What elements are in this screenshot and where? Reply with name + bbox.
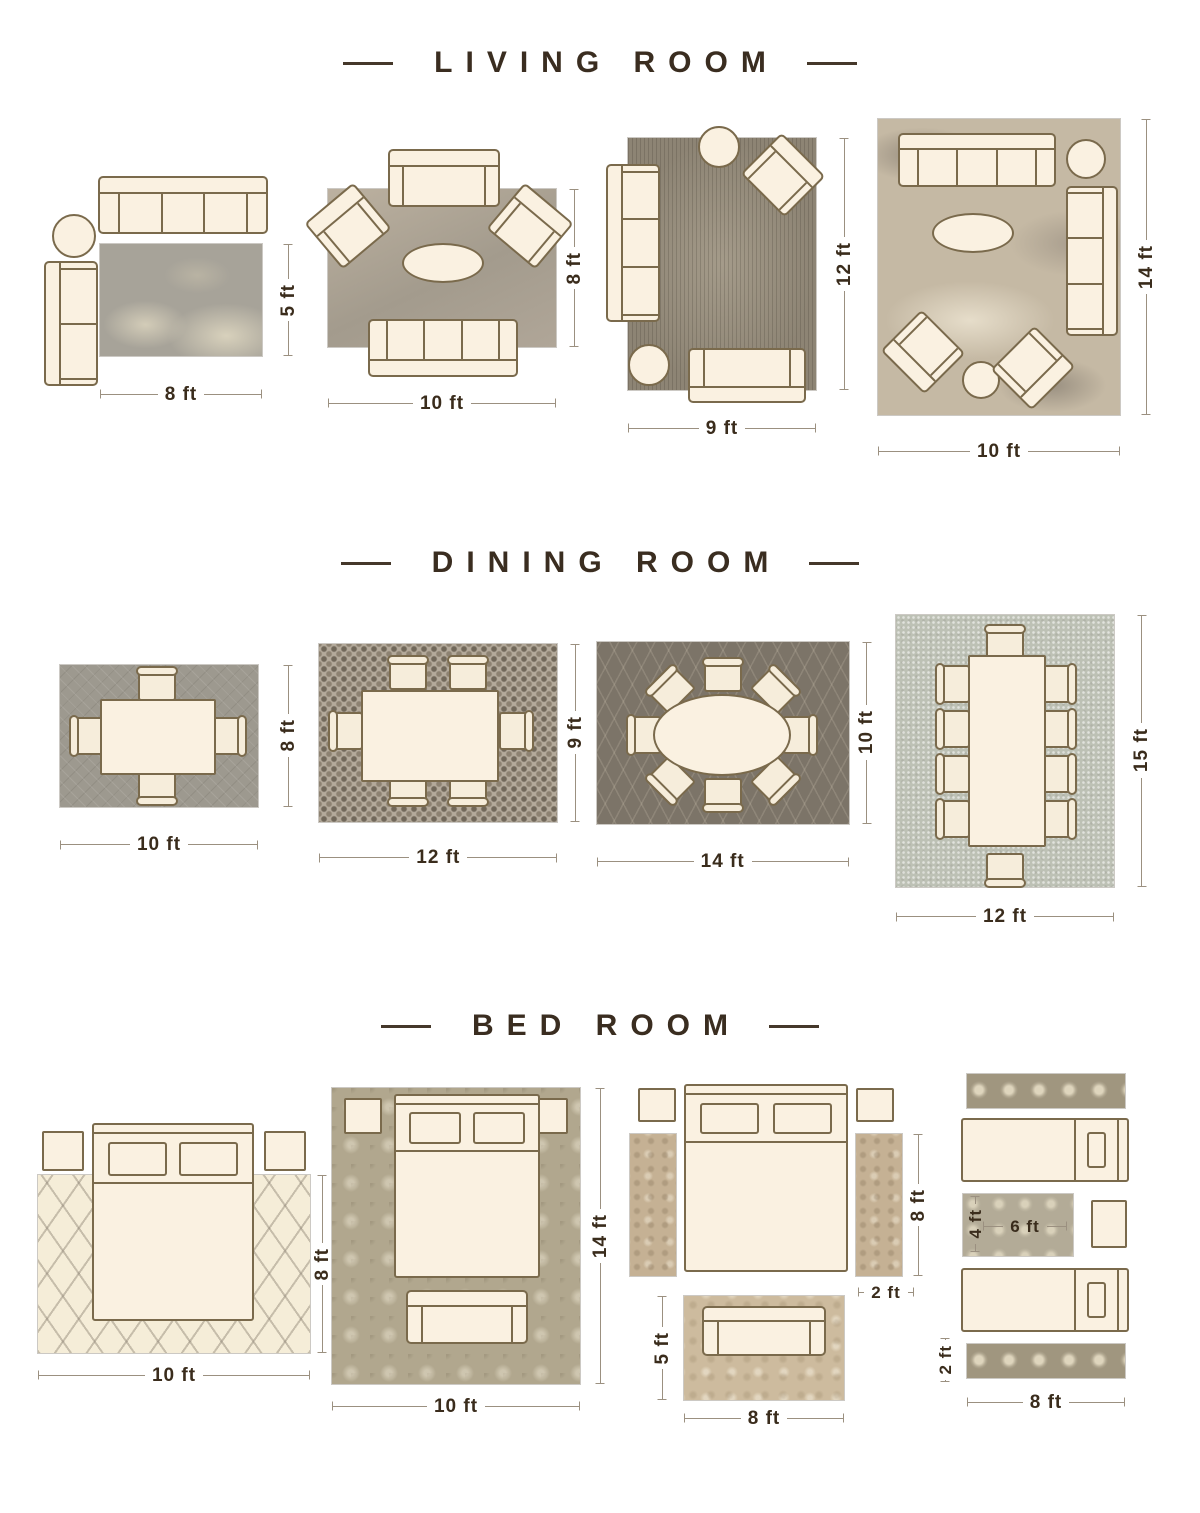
sofa bbox=[368, 319, 518, 377]
sofa-seats bbox=[61, 268, 96, 380]
dining-chair bbox=[1042, 710, 1072, 748]
width-dimension: 10 ft bbox=[878, 441, 1120, 461]
dimension-line bbox=[188, 844, 258, 845]
dimension-line bbox=[597, 861, 694, 862]
dimension-label: 12 ft bbox=[835, 242, 854, 286]
headboard bbox=[1117, 1120, 1127, 1180]
layout-dining-12x9: 9 ft 12 ft bbox=[309, 632, 589, 922]
runner-width-dimension: 2 ft bbox=[935, 1338, 955, 1382]
width-dimension: 14 ft bbox=[597, 852, 849, 872]
sofa-cushion bbox=[1068, 194, 1102, 239]
bed bbox=[684, 1084, 848, 1272]
dining-chair bbox=[1042, 800, 1072, 838]
layout-bed-10x8: 8 ft 10 ft bbox=[26, 1103, 321, 1403]
chair-back bbox=[626, 714, 636, 756]
height-dimension: 8 ft bbox=[312, 1175, 332, 1353]
loveseat bbox=[688, 348, 806, 403]
front-rug-width-dimension: 8 ft bbox=[684, 1408, 844, 1428]
height-dimension: 8 ft bbox=[564, 189, 584, 347]
runner-length-dimension: 8 ft bbox=[908, 1134, 928, 1276]
sofa-cushion bbox=[958, 150, 997, 185]
dining-chair bbox=[940, 755, 970, 793]
layout-living-10x14: 14 ft 10 ft bbox=[870, 111, 1170, 501]
sofa-cushion bbox=[163, 194, 206, 232]
sofa-back bbox=[370, 359, 516, 375]
dimension-label: 10 ft bbox=[420, 394, 464, 413]
bench-loveseat bbox=[406, 1290, 528, 1344]
dimension-line bbox=[467, 857, 557, 858]
dimension-line bbox=[471, 403, 556, 404]
dimension-label: 12 ft bbox=[416, 848, 460, 867]
dimension-line bbox=[975, 1244, 976, 1252]
rug bbox=[100, 244, 262, 356]
coffee-table bbox=[932, 213, 1014, 253]
chair-back bbox=[702, 803, 744, 813]
sofa-cushion bbox=[388, 321, 425, 359]
sofa-seats bbox=[717, 1322, 811, 1354]
twin-bed bbox=[961, 1268, 1129, 1332]
sofa-cushion bbox=[998, 150, 1035, 185]
chair-back bbox=[387, 797, 429, 807]
dimension-line bbox=[866, 760, 867, 824]
dimension-line bbox=[1047, 1226, 1067, 1227]
sofa-cushion bbox=[425, 321, 462, 359]
sofa-cushion bbox=[623, 173, 658, 221]
width-dimension: 9 ft bbox=[628, 418, 816, 438]
title-dash-right bbox=[809, 562, 859, 565]
sofa-back bbox=[1102, 188, 1116, 334]
sofa-back bbox=[608, 166, 623, 320]
runner-rug bbox=[967, 1344, 1125, 1378]
dining-chair bbox=[704, 778, 742, 808]
dimension-label: 6 ft bbox=[1010, 1218, 1040, 1235]
nightstand bbox=[264, 1131, 306, 1171]
dimension-label: 14 ft bbox=[591, 1214, 610, 1258]
sofa bbox=[898, 133, 1056, 187]
dimension-label: 8 ft bbox=[565, 252, 584, 285]
dimension-line bbox=[1069, 1402, 1125, 1403]
sofa-cushion bbox=[463, 321, 498, 359]
runner-rug bbox=[967, 1074, 1125, 1108]
chair-back bbox=[935, 663, 945, 705]
chair-back bbox=[702, 657, 744, 667]
layout-dining-12x15: 15 ft 12 ft bbox=[882, 607, 1162, 947]
height-dimension: 5 ft bbox=[278, 244, 298, 356]
dimension-line bbox=[866, 642, 867, 706]
twin-bed bbox=[961, 1118, 1129, 1182]
loveseat bbox=[44, 261, 98, 386]
chair-back bbox=[984, 878, 1026, 888]
dimension-line bbox=[844, 291, 845, 390]
chair-back bbox=[69, 715, 79, 757]
dining-chair bbox=[704, 662, 742, 692]
sofa-cushion bbox=[120, 194, 163, 232]
dimension-line bbox=[319, 857, 409, 858]
dimension-label: 10 ft bbox=[857, 710, 876, 754]
dining-table bbox=[361, 690, 499, 782]
dimension-label: 5 ft bbox=[279, 284, 298, 317]
accent-width-dimension: 6 ft bbox=[983, 1216, 1067, 1236]
dining-chair bbox=[986, 853, 1024, 883]
layout-living-10x8: 8 ft 10 ft bbox=[310, 141, 590, 471]
sofa-seats bbox=[421, 1307, 513, 1342]
height-dimension: 14 ft bbox=[590, 1088, 610, 1384]
sofa-back bbox=[900, 135, 1054, 150]
dining-table bbox=[968, 655, 1046, 847]
sofa-back bbox=[390, 151, 498, 167]
dimension-label: 14 ft bbox=[701, 852, 745, 871]
dimension-label: 10 ft bbox=[137, 835, 181, 854]
nightstand bbox=[344, 1098, 382, 1134]
sofa-seats bbox=[118, 194, 248, 232]
bench-sofa bbox=[702, 1306, 826, 1356]
pillow-area bbox=[1074, 1120, 1117, 1180]
dimension-line bbox=[918, 1134, 919, 1184]
bed bbox=[394, 1094, 540, 1278]
dimension-line bbox=[600, 1088, 601, 1209]
section-title-text: BED ROOM bbox=[459, 1009, 741, 1043]
sofa-seats bbox=[623, 171, 658, 316]
section-living-room: LIVING ROOM 5 ft 8 ft bbox=[0, 46, 1200, 506]
side-table bbox=[698, 126, 740, 168]
dimension-line bbox=[945, 1380, 946, 1382]
pillow-area bbox=[686, 1095, 846, 1143]
sofa-cushion bbox=[61, 270, 96, 325]
dining-table-oval bbox=[653, 694, 791, 776]
title-dash-left bbox=[343, 62, 393, 65]
width-dimension: 10 ft bbox=[60, 835, 258, 855]
chair-back bbox=[935, 798, 945, 840]
dimension-label: 15 ft bbox=[1132, 728, 1151, 772]
dimension-label: 8 ft bbox=[165, 385, 198, 404]
sofa-cushion bbox=[1068, 239, 1102, 284]
dining-chair bbox=[1042, 665, 1072, 703]
width-dimension: 12 ft bbox=[319, 848, 557, 868]
dimension-line bbox=[322, 1175, 323, 1243]
section-header: DINING ROOM bbox=[0, 546, 1200, 580]
dining-chair bbox=[138, 771, 176, 801]
chair-back bbox=[387, 655, 429, 665]
dining-chair bbox=[212, 717, 242, 755]
pillow bbox=[1087, 1132, 1106, 1168]
dimension-line bbox=[787, 1418, 844, 1419]
pillow-area bbox=[1074, 1270, 1117, 1330]
width-dimension: 8 ft bbox=[100, 384, 262, 404]
dimension-label: 10 ft bbox=[977, 442, 1021, 461]
dimension-line bbox=[288, 757, 289, 807]
height-dimension: 9 ft bbox=[565, 644, 585, 822]
sofa-back bbox=[690, 386, 804, 401]
sofa-cushion bbox=[705, 350, 790, 386]
pillow-area bbox=[396, 1105, 538, 1152]
dining-chair bbox=[138, 671, 176, 701]
sofa-cushion bbox=[404, 167, 484, 205]
pillow bbox=[409, 1112, 461, 1144]
side-table bbox=[52, 214, 96, 258]
living-room-layouts: 5 ft 8 ft bbox=[0, 106, 1200, 506]
dimension-line bbox=[908, 1292, 914, 1293]
height-dimension: 12 ft bbox=[834, 138, 854, 390]
dining-chair bbox=[940, 800, 970, 838]
chair-back bbox=[237, 715, 247, 757]
dimension-line bbox=[745, 428, 816, 429]
sofa-back bbox=[408, 1292, 526, 1307]
chair-back bbox=[524, 710, 534, 752]
layout-dining-10x8: 8 ft 10 ft bbox=[38, 647, 308, 907]
front-rug-height-dimension: 5 ft bbox=[652, 1296, 672, 1400]
runner-rug bbox=[856, 1134, 902, 1276]
dimension-line bbox=[328, 403, 413, 404]
height-dimension: 10 ft bbox=[857, 642, 877, 824]
sofa bbox=[606, 164, 660, 322]
pillow bbox=[773, 1103, 832, 1134]
dimension-line bbox=[288, 321, 289, 356]
mattress bbox=[686, 1143, 846, 1270]
layout-living-9x12: 12 ft 9 ft bbox=[590, 126, 870, 486]
sofa-cushion bbox=[623, 220, 658, 268]
dimension-label: 14 ft bbox=[1137, 245, 1156, 289]
dimension-label: 9 ft bbox=[706, 419, 739, 438]
dimension-label: 10 ft bbox=[434, 1397, 478, 1416]
layout-living-8x5: 5 ft 8 ft bbox=[30, 156, 310, 456]
runner-length-dimension: 8 ft bbox=[967, 1392, 1125, 1412]
chair-back bbox=[136, 666, 178, 676]
headboard bbox=[686, 1086, 846, 1095]
pillow bbox=[108, 1142, 166, 1176]
sofa-back bbox=[704, 1308, 824, 1322]
headboard bbox=[396, 1096, 538, 1105]
sofa-cushion bbox=[719, 1322, 809, 1354]
nightstand bbox=[42, 1131, 84, 1171]
height-dimension: 14 ft bbox=[1136, 119, 1156, 415]
sofa-cushion bbox=[423, 1307, 511, 1342]
dimension-line bbox=[858, 1292, 864, 1293]
bed-room-layouts: 8 ft 10 ft 14 ft 10 ft bbox=[0, 1067, 1200, 1439]
dimension-label: 8 ft bbox=[748, 1409, 781, 1428]
dimension-line bbox=[975, 1196, 976, 1204]
section-title-text: LIVING ROOM bbox=[421, 46, 779, 80]
chair-back bbox=[447, 797, 489, 807]
section-header: BED ROOM bbox=[0, 1009, 1200, 1043]
sofa-seats bbox=[917, 150, 1037, 185]
chair-back bbox=[935, 753, 945, 795]
width-dimension: 10 ft bbox=[328, 393, 556, 413]
dimension-line bbox=[628, 428, 699, 429]
chair-back bbox=[935, 708, 945, 750]
dimension-line bbox=[983, 1226, 1003, 1227]
dimension-line bbox=[844, 138, 845, 237]
runner-width-dimension: 2 ft bbox=[858, 1282, 914, 1302]
dimension-label: 8 ft bbox=[1030, 1393, 1063, 1412]
sofa-seats bbox=[402, 167, 486, 205]
dimension-line bbox=[60, 844, 130, 845]
sofa-back bbox=[100, 178, 266, 194]
dining-chair bbox=[499, 712, 529, 750]
width-dimension: 10 ft bbox=[38, 1365, 310, 1385]
chair-back bbox=[136, 796, 178, 806]
dimension-line bbox=[600, 1263, 601, 1384]
dimension-line bbox=[575, 644, 576, 712]
dimension-label: 2 ft bbox=[871, 1284, 901, 1301]
width-dimension: 12 ft bbox=[896, 907, 1114, 927]
nightstand bbox=[638, 1088, 676, 1122]
chair-back bbox=[1067, 663, 1077, 705]
sofa-cushion bbox=[1068, 285, 1102, 328]
dimension-line bbox=[574, 189, 575, 247]
dining-room-layouts: 8 ft 10 ft 9 ft 12 ft bbox=[0, 604, 1200, 949]
height-dimension: 15 ft bbox=[1132, 615, 1152, 887]
dimension-line bbox=[752, 861, 849, 862]
sofa-cushion bbox=[919, 150, 958, 185]
pillow bbox=[473, 1112, 525, 1144]
coffee-table bbox=[402, 243, 484, 283]
dimension-line bbox=[1146, 294, 1147, 415]
side-table bbox=[1066, 139, 1106, 179]
dimension-line bbox=[574, 289, 575, 347]
sofa-cushion bbox=[61, 325, 96, 378]
title-dash-right bbox=[807, 62, 857, 65]
section-title-text: DINING ROOM bbox=[419, 546, 782, 580]
dining-chair bbox=[940, 710, 970, 748]
mattress bbox=[963, 1120, 1074, 1180]
nightstand bbox=[856, 1088, 894, 1122]
layout-dining-14x10: 10 ft 14 ft bbox=[591, 632, 881, 922]
dining-chair bbox=[449, 660, 487, 690]
dimension-line bbox=[100, 394, 158, 395]
dimension-label: 5 ft bbox=[653, 1332, 672, 1365]
sofa-seats bbox=[386, 321, 500, 359]
accent-height-dimension: 4 ft bbox=[965, 1196, 985, 1252]
chair-back bbox=[1067, 798, 1077, 840]
dimension-line bbox=[1034, 916, 1114, 917]
dimension-label: 2 ft bbox=[937, 1345, 954, 1375]
sofa bbox=[98, 176, 268, 234]
sofa-cushion bbox=[205, 194, 246, 232]
chair-back bbox=[447, 655, 489, 665]
chair-back bbox=[328, 710, 338, 752]
dimension-line bbox=[288, 244, 289, 279]
layout-bed-runners: 8 ft 2 ft 5 ft 8 ft bbox=[618, 1078, 918, 1428]
dimension-label: 4 ft bbox=[967, 1209, 984, 1239]
mattress bbox=[94, 1184, 252, 1319]
dimension-line bbox=[896, 916, 976, 917]
dimension-label: 8 ft bbox=[313, 1248, 332, 1281]
pillow bbox=[700, 1103, 759, 1134]
pillow bbox=[179, 1142, 237, 1176]
dimension-line bbox=[38, 1375, 145, 1376]
sofa-back bbox=[46, 263, 61, 384]
dimension-line bbox=[203, 1375, 310, 1376]
chair-back bbox=[1067, 708, 1077, 750]
dimension-line bbox=[662, 1296, 663, 1327]
dimension-line bbox=[322, 1285, 323, 1353]
pillow-area bbox=[94, 1134, 252, 1184]
width-dimension: 10 ft bbox=[332, 1396, 580, 1416]
title-dash-left bbox=[341, 562, 391, 565]
headboard bbox=[94, 1125, 252, 1134]
dimension-line bbox=[1146, 119, 1147, 240]
title-dash-left bbox=[381, 1025, 431, 1028]
title-dash-right bbox=[769, 1025, 819, 1028]
sofa bbox=[1066, 186, 1118, 336]
dimension-line bbox=[1141, 615, 1142, 724]
chair-back bbox=[1067, 753, 1077, 795]
dimension-line bbox=[684, 1418, 741, 1419]
dimension-line bbox=[945, 1338, 946, 1340]
dimension-label: 9 ft bbox=[566, 716, 585, 749]
bed bbox=[92, 1123, 254, 1321]
nightstand bbox=[1091, 1200, 1127, 1248]
runner-rug bbox=[630, 1134, 676, 1276]
pillow bbox=[1087, 1282, 1106, 1318]
dining-chair bbox=[389, 660, 427, 690]
dimension-label: 8 ft bbox=[279, 719, 298, 752]
dining-chair bbox=[940, 665, 970, 703]
mattress bbox=[396, 1152, 538, 1276]
dimension-line bbox=[967, 1402, 1023, 1403]
layout-bed-twin: 4 ft 6 ft 2 ft 8 ft bbox=[919, 1068, 1174, 1438]
section-header: LIVING ROOM bbox=[0, 46, 1200, 80]
dimension-line bbox=[918, 1226, 919, 1276]
side-table bbox=[628, 344, 670, 386]
dining-chair bbox=[333, 712, 363, 750]
dining-table bbox=[100, 699, 216, 775]
chair-back bbox=[808, 714, 818, 756]
sofa-cushion bbox=[623, 268, 658, 314]
dimension-label: 12 ft bbox=[983, 907, 1027, 926]
dimension-line bbox=[1141, 778, 1142, 887]
dimension-line bbox=[662, 1369, 663, 1400]
sofa-seats bbox=[1068, 192, 1102, 329]
headboard bbox=[1117, 1270, 1127, 1330]
chair-back bbox=[984, 624, 1026, 634]
layout-bed-10x14: 14 ft 10 ft bbox=[322, 1078, 617, 1428]
dimension-line bbox=[1028, 451, 1120, 452]
rug-size-guide: { "sections": [ { "title": "LIVING ROOM"… bbox=[0, 46, 1200, 1513]
dimension-line bbox=[204, 394, 262, 395]
dimension-label: 10 ft bbox=[152, 1366, 196, 1385]
loveseat bbox=[388, 149, 500, 207]
mattress bbox=[963, 1270, 1074, 1330]
dimension-line bbox=[332, 1406, 427, 1407]
dimension-line bbox=[575, 754, 576, 822]
dimension-line bbox=[878, 451, 970, 452]
dimension-line bbox=[288, 665, 289, 715]
height-dimension: 8 ft bbox=[278, 665, 298, 807]
sofa-seats bbox=[703, 350, 792, 386]
section-dining-room: DINING ROOM 8 ft 10 ft bbox=[0, 546, 1200, 949]
dimension-label: 8 ft bbox=[909, 1189, 928, 1222]
dimension-line bbox=[485, 1406, 580, 1407]
dining-chair bbox=[1042, 755, 1072, 793]
section-bed-room: BED ROOM 8 ft 10 ft bbox=[0, 1009, 1200, 1439]
